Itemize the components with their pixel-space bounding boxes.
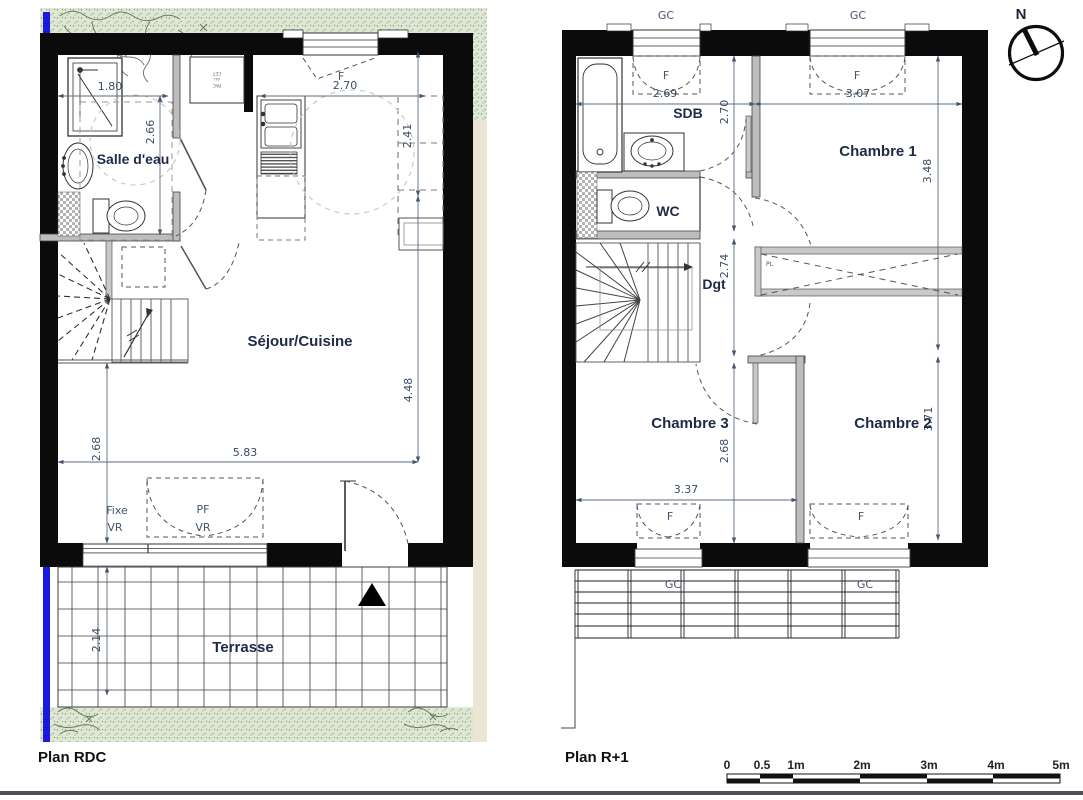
gc-top-right-label: GC (850, 9, 867, 22)
bay-fixe-vr-label: VR (107, 521, 123, 534)
scale-tick-05: 0.5 (754, 758, 771, 772)
toilet-rdc (93, 199, 145, 233)
dim-sejour-width: 5.83 (233, 446, 258, 459)
f-top-right-label: F (854, 69, 860, 82)
dim-sdb-depth: 2.70 (718, 100, 731, 125)
tech-closet-line3: CET (212, 70, 221, 76)
tech-closet-line1: PAC (213, 82, 222, 88)
plan-r1-title: Plan R+1 (565, 749, 629, 766)
bathtub (578, 58, 622, 172)
page-bottom-rule (0, 791, 1083, 795)
f-bottom-left-label: F (667, 510, 673, 523)
dim-salle-deau-width: 1.80 (98, 80, 123, 93)
plan-r1: PL (561, 9, 988, 766)
roof-outline (561, 638, 575, 728)
dim-chambre1-width: 3.07 (846, 87, 871, 100)
dim-dgt-depth: 2.74 (718, 254, 731, 279)
scale-tick-4m: 4m (987, 758, 1004, 772)
room-label-terrasse: Terrasse (212, 639, 273, 656)
washbasin-rdc (62, 143, 93, 189)
room-label-sejour-cuisine: Séjour/Cuisine (247, 333, 352, 350)
dim-sejour-depth: 4.48 (402, 378, 415, 403)
room-label-wc: WC (656, 203, 679, 219)
dim-salle-deau-depth: 2.66 (144, 120, 157, 145)
toilet-r1 (597, 190, 649, 223)
window-label-f: F (338, 70, 344, 83)
bay-pf-vr-label: VR (195, 521, 211, 534)
terrace (58, 567, 447, 707)
gc-top-left-label: GC (658, 9, 675, 22)
scale-bar: 0 0.5 1m 2m 3m 4m 5m (724, 758, 1070, 783)
dim-terrasse-depth: 2.14 (90, 628, 103, 653)
dim-chambre3-width: 3.37 (674, 483, 699, 496)
duct-hatch-rdc (58, 192, 80, 236)
kitchen-unit (257, 96, 305, 240)
plan-rdc-title: Plan RDC (38, 749, 107, 766)
room-label-chambre1: Chambre 1 (839, 143, 917, 160)
plan-rdc: PAC ou CET (38, 8, 487, 766)
f-top-left-label: F (663, 69, 669, 82)
dim-placard-depth: 2.41 (401, 124, 414, 149)
dim-chambre3-depth: 2.68 (718, 439, 731, 464)
floor-plan-page: PAC ou CET (0, 0, 1083, 800)
scale-tick-0: 0 (724, 758, 731, 772)
closet-label: PL (766, 261, 774, 268)
scale-tick-2m: 2m (853, 758, 870, 772)
bay-pf-label: PF (197, 503, 210, 516)
shower (68, 58, 122, 136)
scale-tick-1m: 1m (787, 758, 804, 772)
stairs-rdc (58, 241, 239, 363)
scale-tick-3m: 3m (920, 758, 937, 772)
stairs-r1 (576, 243, 700, 362)
f-bottom-right-label: F (858, 510, 864, 523)
gc-bottom-right-label: GC (857, 578, 874, 591)
r1-dimensions (576, 56, 962, 543)
r1-exterior-walls (562, 30, 988, 567)
rdc-entrance-door (340, 481, 409, 567)
north-compass-icon: N (1009, 6, 1064, 80)
scale-tick-5m: 5m (1052, 758, 1069, 772)
tech-closet-line2: ou (214, 76, 220, 81)
bay-fixe-label: Fixe (106, 504, 128, 517)
dim-entree-depth: 2.68 (90, 437, 103, 462)
dim-chambre1-depth: 3.48 (921, 159, 934, 184)
balcony-railing (575, 570, 899, 638)
dim-cuisine-width: 2.70 (333, 79, 358, 92)
salle-deau-door (176, 138, 206, 236)
room-label-dgt: Dgt (702, 276, 726, 292)
washbasin-sdb (624, 133, 684, 171)
room-label-sdb: SDB (673, 105, 703, 121)
room-label-chambre2: Chambre 2 (854, 415, 932, 432)
north-label: N (1016, 6, 1027, 23)
room-label-chambre3: Chambre 3 (651, 415, 729, 432)
duct-hatch-r1 (577, 172, 597, 238)
gc-bottom-left-label: GC (665, 578, 682, 591)
closet-placard: PL (755, 247, 962, 296)
dim-sdb-width: 2.69 (653, 87, 678, 100)
tech-closet: PAC ou CET (190, 57, 244, 103)
room-label-salle-deau: Salle d'eau (97, 151, 170, 167)
